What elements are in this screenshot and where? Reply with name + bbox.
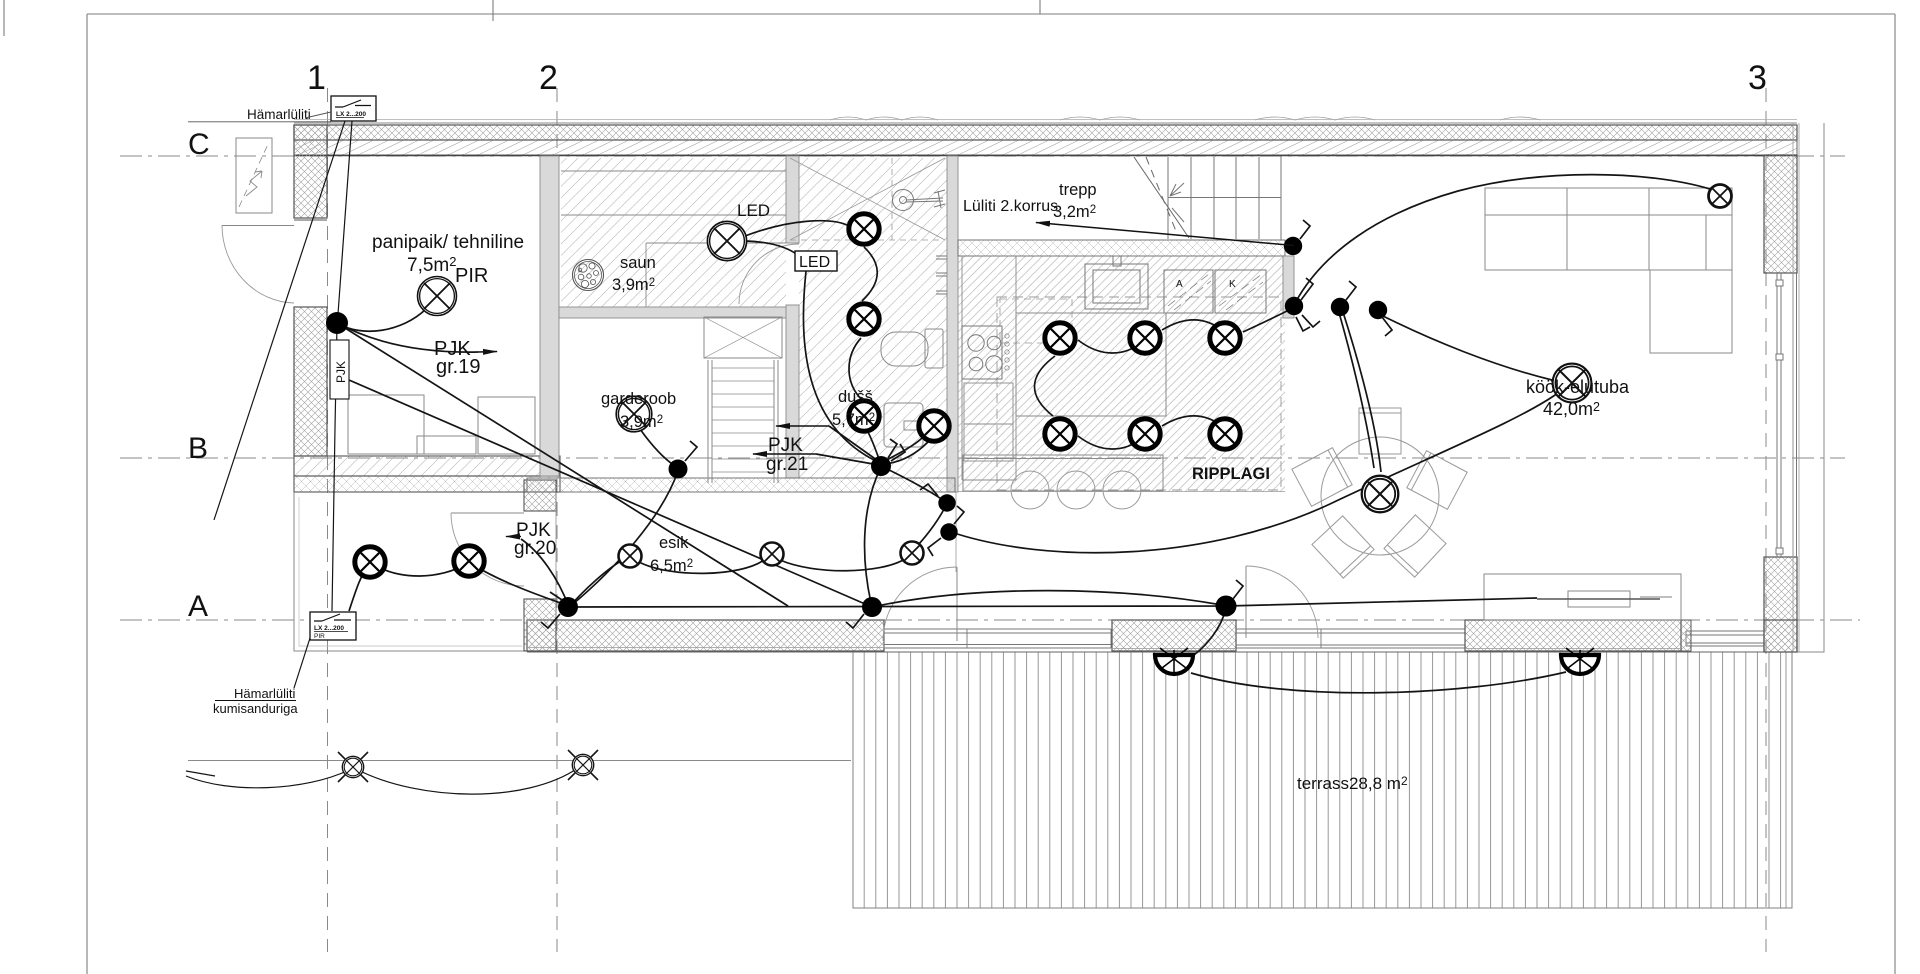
svg-text:5,7m2: 5,7m2	[832, 411, 875, 429]
svg-text:trepp: trepp	[1059, 181, 1097, 199]
svg-text:LX 2...200: LX 2...200	[314, 625, 344, 632]
svg-text:saun: saun	[620, 254, 656, 272]
svg-text:1: 1	[307, 59, 326, 97]
svg-text:2: 2	[539, 59, 558, 97]
svg-text:K: K	[1229, 279, 1236, 290]
svg-text:3,9m2: 3,9m2	[612, 276, 655, 294]
svg-text:gr.19: gr.19	[436, 356, 480, 378]
svg-text:C: C	[188, 128, 210, 161]
svg-text:LED: LED	[737, 201, 770, 220]
svg-text:3,9m2: 3,9m2	[620, 413, 663, 431]
svg-text:Hämarlüliti: Hämarlüliti	[247, 107, 311, 122]
svg-text:A: A	[1176, 279, 1183, 290]
svg-text:3: 3	[1748, 59, 1767, 97]
svg-text:dušš: dušš	[838, 388, 873, 406]
svg-text:kumisanduriga: kumisanduriga	[213, 701, 298, 716]
svg-text:PJK: PJK	[768, 435, 803, 456]
svg-text:Lüliti 2.korrus: Lüliti 2.korrus	[963, 198, 1058, 215]
svg-text:garderoob: garderoob	[601, 390, 676, 408]
svg-text:7,5m2: 7,5m2	[407, 254, 456, 276]
svg-text:gr.21: gr.21	[766, 454, 808, 475]
svg-text:esik: esik	[659, 534, 689, 552]
svg-text:gr.20: gr.20	[514, 538, 556, 559]
svg-text:A: A	[188, 590, 208, 623]
svg-text:42,0m2: 42,0m2	[1543, 399, 1600, 419]
svg-text:panipaik/ tehniline: panipaik/ tehniline	[372, 232, 524, 253]
svg-text:3,2m2: 3,2m2	[1053, 203, 1096, 221]
svg-text:Hämarlüliti: Hämarlüliti	[234, 686, 296, 701]
svg-text:LX 2...200: LX 2...200	[336, 111, 366, 118]
svg-text:RIPPLAGI: RIPPLAGI	[1192, 465, 1270, 483]
svg-text:6,5m2: 6,5m2	[650, 557, 693, 575]
svg-text:köök-elutuba: köök-elutuba	[1526, 377, 1630, 397]
svg-text:terrass28,8 m2: terrass28,8 m2	[1297, 774, 1408, 793]
svg-text:PIR: PIR	[314, 633, 325, 640]
svg-text:B: B	[188, 432, 208, 465]
svg-text:PIR: PIR	[455, 265, 488, 287]
svg-text:LED: LED	[799, 254, 830, 271]
svg-text:PJK: PJK	[334, 361, 348, 383]
